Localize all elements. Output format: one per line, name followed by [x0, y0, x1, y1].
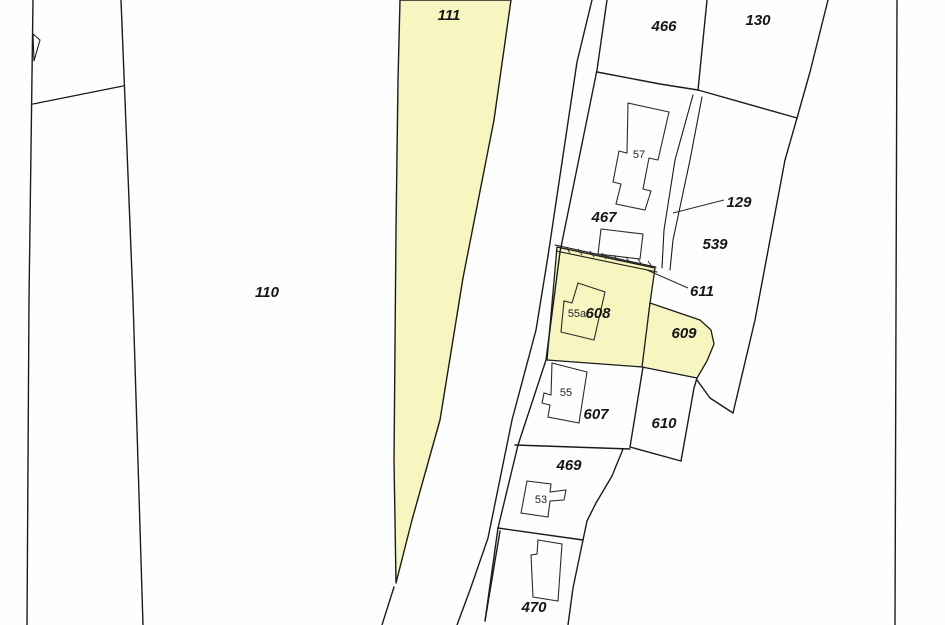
parcel-label-607: 607: [583, 406, 609, 423]
parcel-label-110: 110: [255, 284, 280, 301]
parcel-label-129: 129: [726, 194, 752, 211]
map-canvas: 110 111 466 130 467 129 539 611 608 609 …: [0, 0, 945, 625]
parcel-label-611: 611: [690, 283, 714, 300]
parcel-label-467: 467: [590, 209, 617, 226]
building-label-55a: 55a: [568, 308, 587, 320]
cadastral-map: 110 111 466 130 467 129 539 611 608 609 …: [0, 0, 945, 625]
parcel-label-609: 609: [671, 325, 697, 342]
parcel-label-130: 130: [745, 12, 771, 29]
parcel-label-608: 608: [585, 305, 611, 322]
parcel-label-469: 469: [555, 457, 582, 474]
parcel-label-466: 466: [650, 18, 677, 35]
building-label-55: 55: [560, 387, 572, 399]
parcel-label-470: 470: [520, 599, 547, 616]
parcel-label-111: 111: [438, 7, 461, 24]
building-label-53: 53: [535, 494, 547, 506]
parcel-label-539: 539: [702, 236, 728, 253]
parcel-label-610: 610: [651, 415, 677, 432]
building-label-57: 57: [633, 149, 645, 161]
